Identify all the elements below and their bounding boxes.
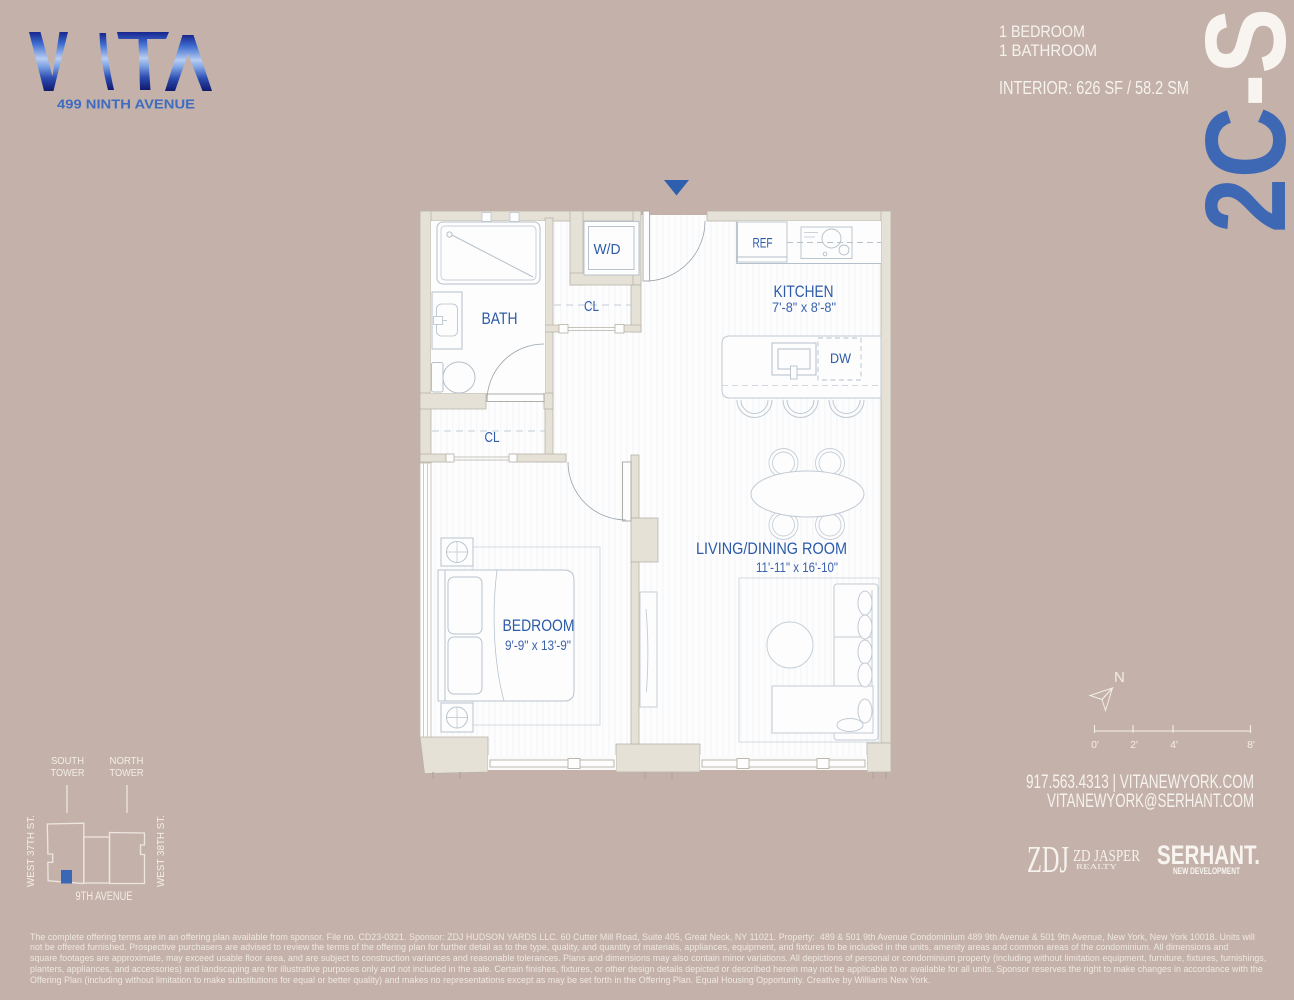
svg-text:WEST 38TH ST.: WEST 38TH ST. xyxy=(155,815,167,887)
svg-text:N: N xyxy=(1114,669,1125,686)
svg-text:0': 0' xyxy=(1091,739,1099,751)
svg-text:NEW DEVELOPMENT: NEW DEVELOPMENT xyxy=(1173,866,1240,876)
svg-text:2': 2' xyxy=(1130,739,1138,751)
svg-text:INTERIOR: 626 SF / 58.2 SM: INTERIOR: 626 SF / 58.2 SM xyxy=(999,78,1189,98)
svg-text:11'-11" x 16'-10": 11'-11" x 16'-10" xyxy=(756,560,838,575)
svg-text:ZDJ: ZDJ xyxy=(1027,839,1069,881)
svg-text:SOUTH: SOUTH xyxy=(51,755,84,767)
svg-text:BATH: BATH xyxy=(482,309,518,328)
svg-text:4': 4' xyxy=(1170,739,1178,751)
svg-text:1 BATHROOM: 1 BATHROOM xyxy=(999,41,1097,60)
svg-text:KITCHEN: KITCHEN xyxy=(774,282,834,301)
svg-text:VITANEWYORK@SERHANT.COM: VITANEWYORK@SERHANT.COM xyxy=(1047,791,1254,812)
svg-text:917.563.4313 | VITANEWYORK.COM: 917.563.4313 | VITANEWYORK.COM xyxy=(1026,772,1254,793)
svg-text:7'-8" x 8'-8": 7'-8" x 8'-8" xyxy=(772,300,836,315)
svg-text:CL: CL xyxy=(485,429,500,446)
svg-text:REF: REF xyxy=(753,235,773,251)
svg-text:9TH AVENUE: 9TH AVENUE xyxy=(76,891,133,903)
svg-text:CL: CL xyxy=(584,298,599,315)
svg-text:NORTH: NORTH xyxy=(110,755,144,767)
svg-text:8': 8' xyxy=(1247,739,1255,751)
svg-text:TOWER: TOWER xyxy=(51,767,85,779)
svg-text:DW: DW xyxy=(830,350,852,366)
svg-text:WEST 37TH ST.: WEST 37TH ST. xyxy=(25,815,37,887)
svg-text:W/D: W/D xyxy=(594,241,621,258)
svg-text:LIVING/DINING ROOM: LIVING/DINING ROOM xyxy=(696,539,847,558)
svg-text:9'-9" x 13'-9": 9'-9" x 13'-9" xyxy=(505,638,571,653)
svg-text:REALTY: REALTY xyxy=(1076,863,1117,871)
svg-text:BEDROOM: BEDROOM xyxy=(503,616,575,635)
svg-text:1 BEDROOM: 1 BEDROOM xyxy=(999,22,1085,41)
svg-text:TOWER: TOWER xyxy=(110,767,144,779)
svg-text:2C-S: 2C-S xyxy=(1183,8,1294,233)
svg-text:499 NINTH AVENUE: 499 NINTH AVENUE xyxy=(57,98,195,112)
